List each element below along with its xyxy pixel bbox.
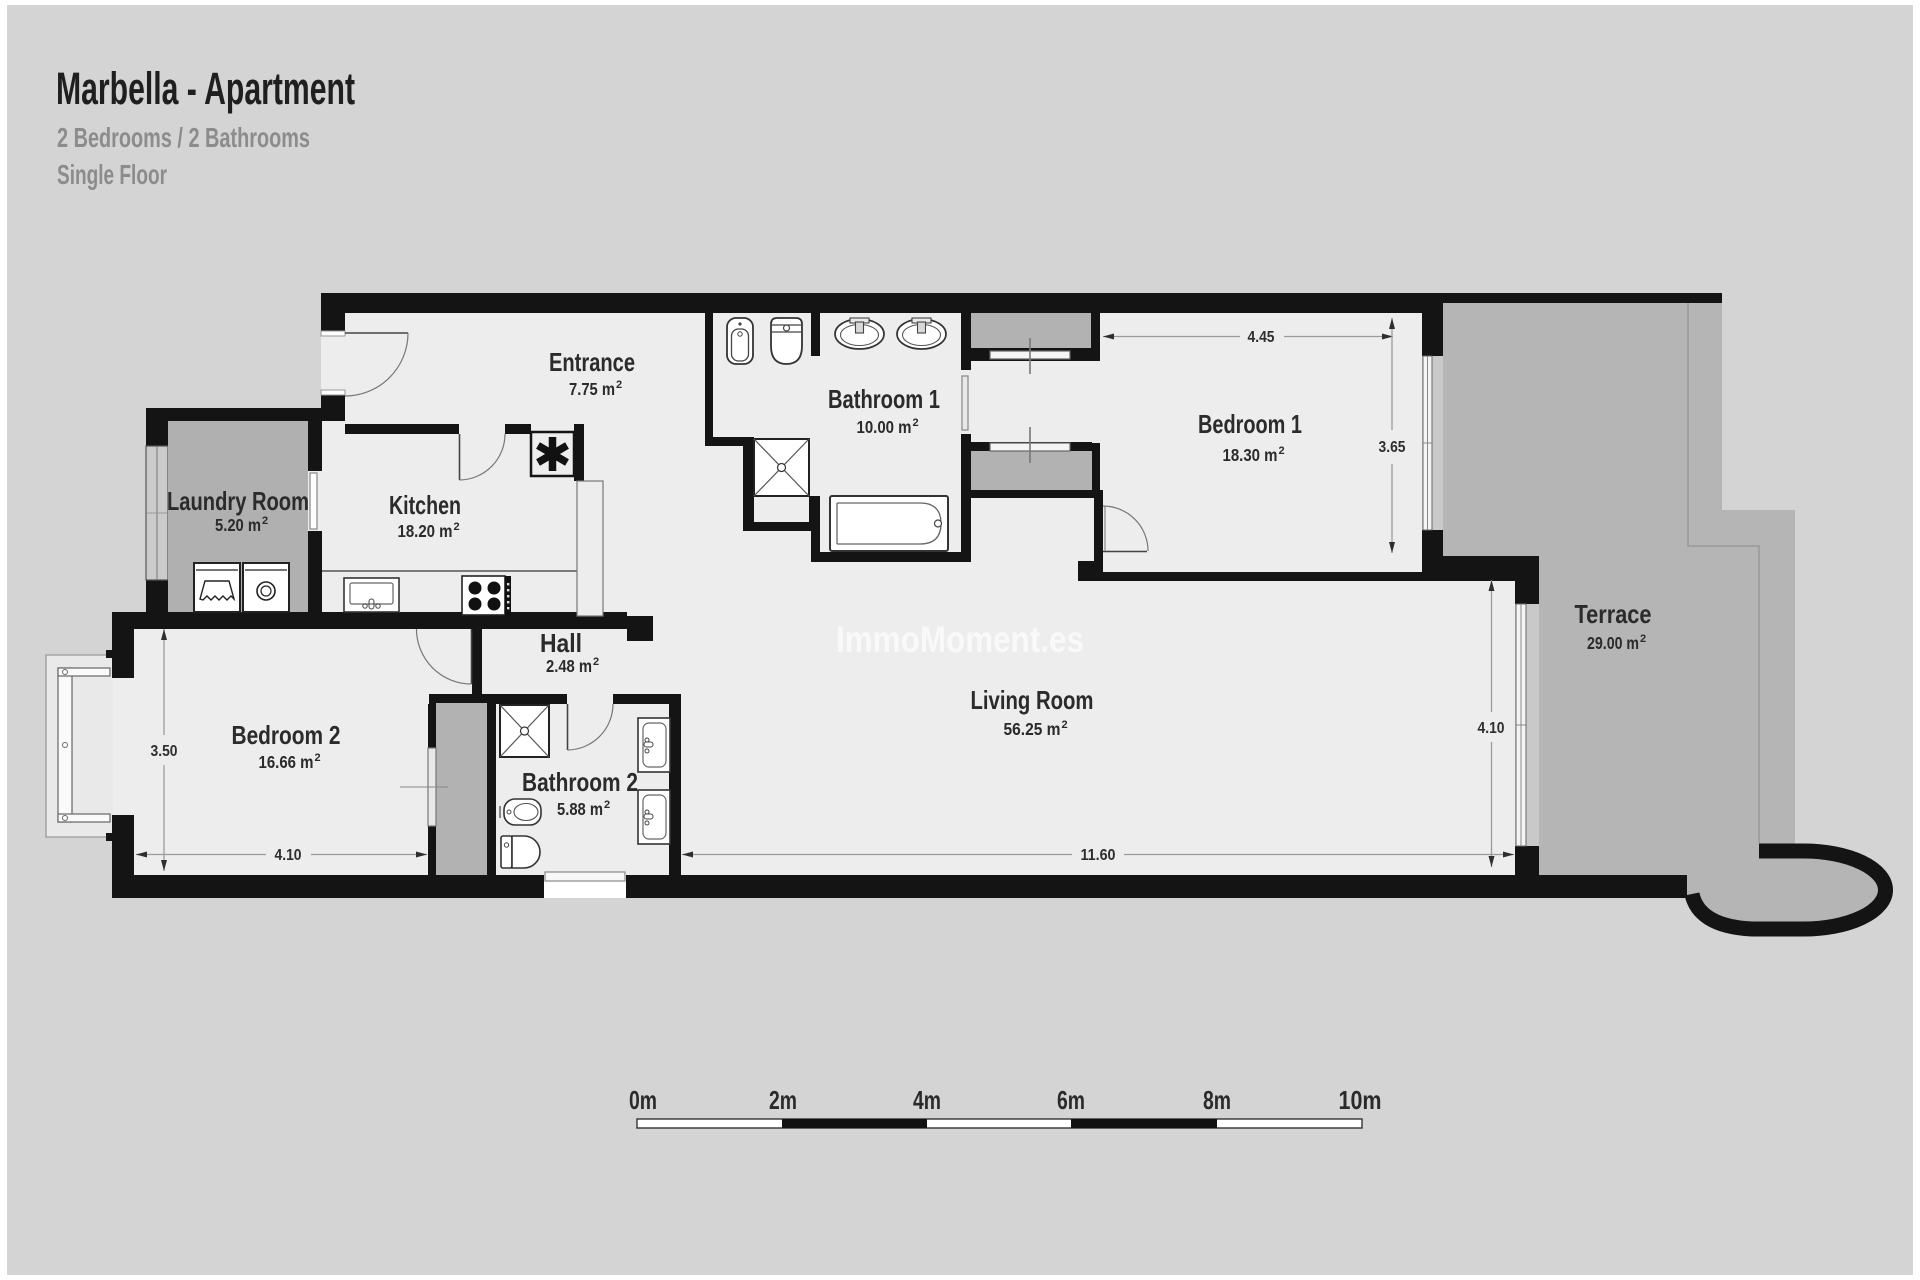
svg-text:2m: 2m: [769, 1085, 797, 1115]
svg-text:Living Room: Living Room: [971, 685, 1094, 715]
svg-text:Terrace: Terrace: [1575, 599, 1652, 629]
svg-text:7.75 m: 7.75 m: [569, 379, 615, 399]
svg-text:Kitchen: Kitchen: [389, 490, 461, 520]
svg-text:Hall: Hall: [540, 628, 582, 658]
svg-text:2: 2: [1279, 445, 1285, 457]
svg-text:2: 2: [616, 379, 622, 391]
svg-text:2: 2: [262, 515, 268, 527]
svg-text:18.20 m: 18.20 m: [398, 521, 453, 541]
svg-text:10.00 m: 10.00 m: [857, 417, 912, 437]
svg-text:0m: 0m: [629, 1085, 657, 1115]
svg-text:2: 2: [1062, 719, 1068, 731]
svg-text:2: 2: [454, 521, 460, 533]
svg-text:3.65: 3.65: [1379, 439, 1406, 456]
svg-text:18.30 m: 18.30 m: [1223, 445, 1278, 465]
svg-text:5.20 m: 5.20 m: [215, 515, 261, 535]
svg-text:ImmoMoment.es: ImmoMoment.es: [836, 619, 1084, 660]
svg-text:Bedroom 2: Bedroom 2: [232, 720, 341, 750]
svg-text:2: 2: [315, 752, 321, 764]
svg-text:Single Floor: Single Floor: [57, 159, 167, 190]
svg-text:8m: 8m: [1203, 1085, 1231, 1115]
svg-text:Bathroom 1: Bathroom 1: [828, 384, 940, 414]
svg-text:Marbella - Apartment: Marbella - Apartment: [56, 63, 355, 114]
svg-text:29.00 m: 29.00 m: [1587, 633, 1639, 653]
svg-text:10m: 10m: [1339, 1085, 1382, 1115]
svg-text:4.10: 4.10: [275, 847, 302, 864]
svg-text:4.45: 4.45: [1248, 329, 1275, 346]
svg-text:Bedroom 1: Bedroom 1: [1198, 409, 1302, 439]
svg-text:16.66 m: 16.66 m: [259, 752, 314, 772]
svg-text:5.88 m: 5.88 m: [557, 799, 603, 819]
svg-text:2: 2: [593, 656, 599, 668]
svg-text:56.25 m: 56.25 m: [1004, 719, 1061, 739]
svg-text:Laundry Room: Laundry Room: [167, 486, 309, 516]
svg-text:Bathroom 2: Bathroom 2: [522, 767, 638, 797]
svg-text:2: 2: [913, 417, 919, 429]
svg-text:3.50: 3.50: [151, 743, 178, 760]
svg-text:11.60: 11.60: [1081, 847, 1116, 864]
svg-text:4.10: 4.10: [1478, 720, 1505, 737]
svg-text:2: 2: [1640, 633, 1646, 645]
svg-text:2: 2: [604, 799, 610, 811]
svg-text:2 Bedrooms / 2 Bathrooms: 2 Bedrooms / 2 Bathrooms: [57, 122, 310, 153]
svg-text:4m: 4m: [913, 1085, 941, 1115]
svg-text:Entrance: Entrance: [549, 347, 635, 377]
svg-text:2.48 m: 2.48 m: [546, 656, 592, 676]
svg-text:6m: 6m: [1057, 1085, 1085, 1115]
